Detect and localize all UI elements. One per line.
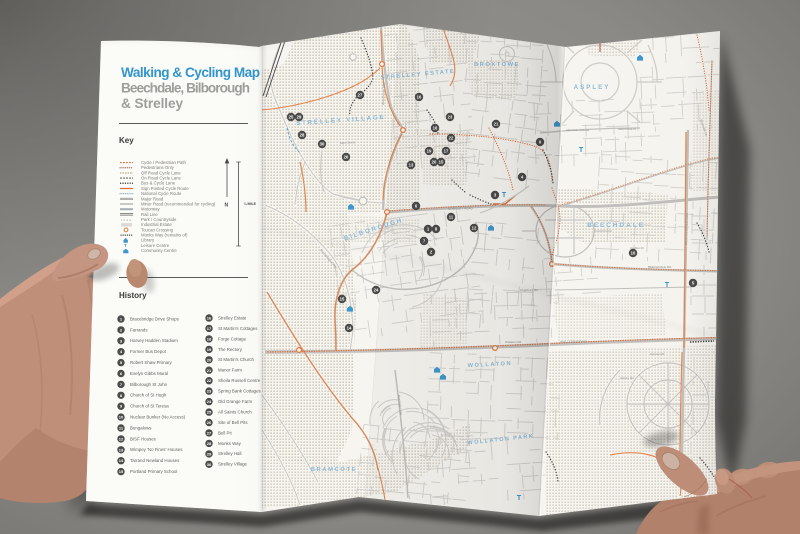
svg-text:14: 14 bbox=[119, 458, 124, 463]
svg-text:Portland Primary School: Portland Primary School bbox=[130, 469, 177, 474]
svg-text:Woodhouse Way: Woodhouse Way bbox=[381, 82, 386, 105]
svg-text:30: 30 bbox=[320, 142, 325, 147]
svg-text:Nuclear Bunker (No Access): Nuclear Bunker (No Access) bbox=[130, 415, 186, 420]
svg-text:27: 27 bbox=[207, 430, 212, 435]
svg-text:BRAMCOTE: BRAMCOTE bbox=[311, 467, 357, 473]
svg-text:22: 22 bbox=[207, 378, 212, 383]
svg-text:Farrands: Farrands bbox=[130, 327, 148, 332]
svg-text:Former Bus Depot: Former Bus Depot bbox=[130, 349, 167, 354]
svg-text:16: 16 bbox=[207, 316, 212, 321]
svg-text:12: 12 bbox=[119, 436, 124, 441]
svg-text:28: 28 bbox=[207, 441, 212, 446]
svg-text:Key: Key bbox=[119, 136, 134, 145]
svg-text:15: 15 bbox=[340, 297, 345, 302]
svg-text:Community Centre: Community Centre bbox=[141, 248, 177, 253]
svg-text:10: 10 bbox=[119, 415, 124, 420]
svg-text:20: 20 bbox=[207, 357, 212, 362]
svg-text:& Strelley: & Strelley bbox=[121, 96, 183, 111]
svg-text:19: 19 bbox=[207, 347, 212, 352]
svg-text:Church of St Teresa: Church of St Teresa bbox=[130, 404, 169, 409]
svg-text:Bungalows: Bungalows bbox=[130, 425, 152, 430]
svg-text:14: 14 bbox=[347, 326, 352, 331]
svg-text:29: 29 bbox=[207, 451, 212, 456]
svg-text:Church of St Hugh: Church of St Hugh bbox=[130, 393, 167, 398]
svg-text:Tarrand Newland Houses: Tarrand Newland Houses bbox=[130, 458, 180, 463]
svg-text:Bracebridge Drive Shops: Bracebridge Drive Shops bbox=[130, 316, 180, 321]
svg-text:13: 13 bbox=[119, 447, 124, 452]
svg-text:18: 18 bbox=[207, 336, 212, 341]
svg-text:30: 30 bbox=[207, 462, 212, 467]
svg-text:BISF Houses: BISF Houses bbox=[130, 436, 157, 441]
svg-text:21: 21 bbox=[207, 368, 212, 373]
svg-text:Harvey Hadden Stadium: Harvey Hadden Stadium bbox=[130, 338, 178, 343]
svg-text:26: 26 bbox=[344, 155, 349, 160]
svg-text:23: 23 bbox=[207, 389, 212, 394]
svg-text:Evelyn Gibbs Mural: Evelyn Gibbs Mural bbox=[130, 371, 168, 376]
svg-text:T: T bbox=[124, 243, 127, 248]
svg-text:History: History bbox=[119, 291, 147, 300]
svg-text:28: 28 bbox=[300, 133, 305, 138]
svg-text:24: 24 bbox=[374, 288, 379, 293]
svg-text:N: N bbox=[225, 203, 229, 209]
svg-text:17: 17 bbox=[207, 326, 212, 331]
svg-text:Bilborough St John: Bilborough St John bbox=[130, 382, 168, 387]
svg-text:Robert Shaw Primary: Robert Shaw Primary bbox=[130, 360, 173, 365]
svg-text:Main Street: Main Street bbox=[340, 140, 356, 145]
svg-text:26: 26 bbox=[207, 420, 212, 425]
svg-text:25: 25 bbox=[207, 410, 212, 415]
svg-text:27: 27 bbox=[358, 93, 363, 98]
svg-text:Wimpey 'No Fines' Houses: Wimpey 'No Fines' Houses bbox=[130, 447, 183, 452]
svg-text:24: 24 bbox=[207, 399, 212, 404]
svg-text:15: 15 bbox=[119, 469, 124, 474]
